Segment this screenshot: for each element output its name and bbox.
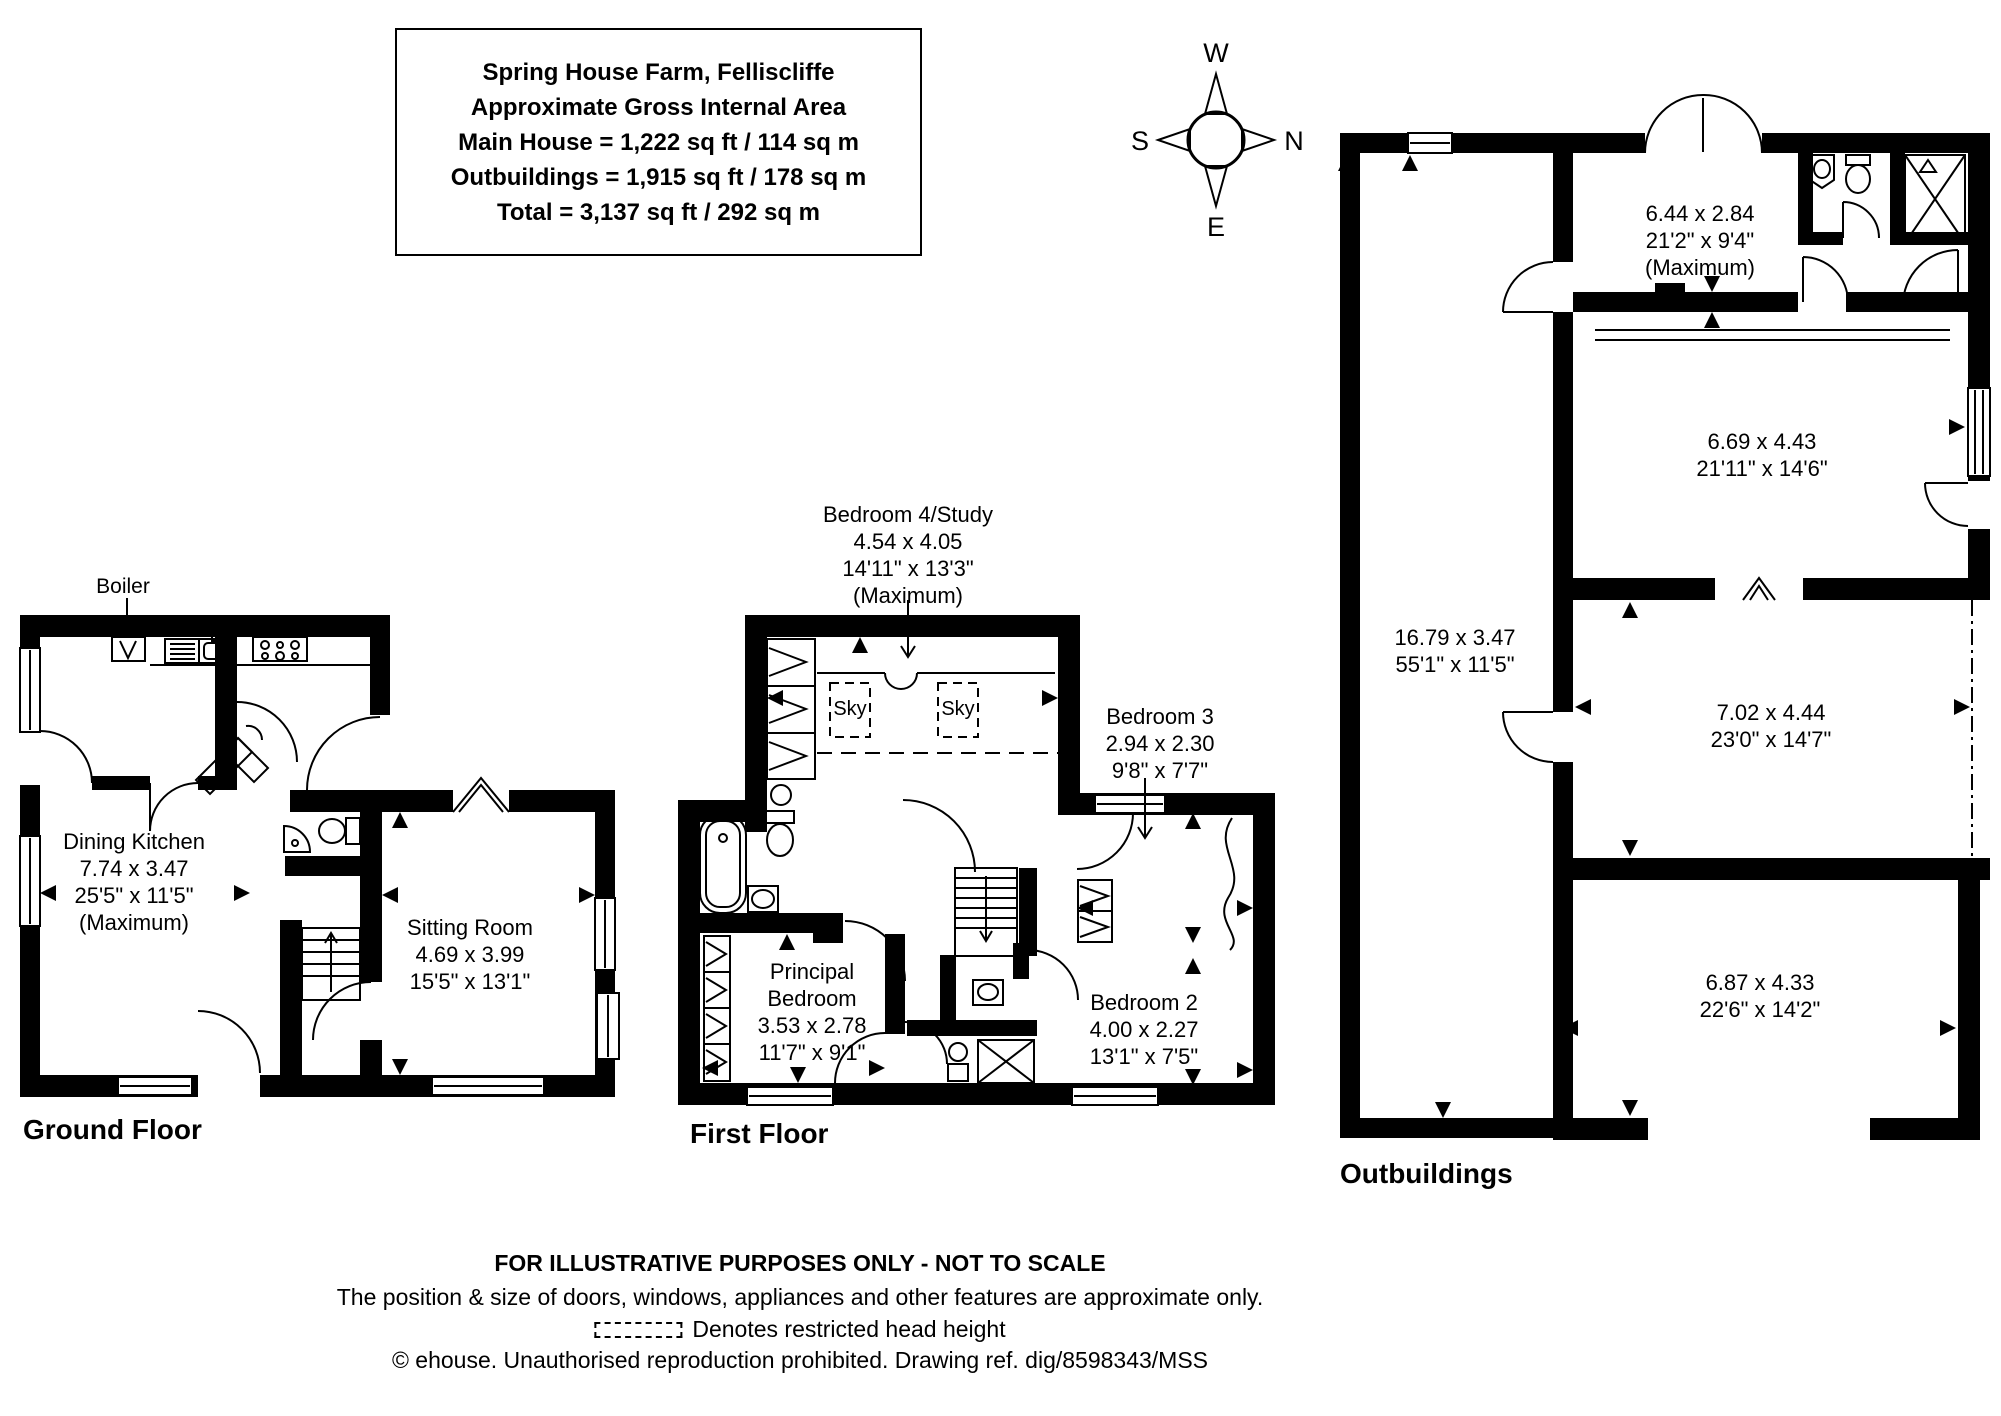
outbuildings-area: Outbuildings = 1,915 sq ft / 178 sq m [397,160,920,195]
compass-north-label: N [1284,126,1304,156]
shower-icon [978,1040,1034,1083]
toilet-icon [766,811,794,856]
middle-barn-label: 7.02 x 4.44 23'0" x 14'7" [1711,699,1832,753]
footer-approx-note: The position & size of doors, windows, a… [337,1284,1263,1311]
area-heading: Approximate Gross Internal Area [397,90,920,125]
bedroom3-label: Bedroom 3 2.94 x 2.30 9'8" x 7'7" [1106,703,1215,784]
hob-icon [253,637,307,661]
shower-icon [1905,155,1965,243]
door-arc [1028,950,1078,1000]
toilet-icon [1846,155,1870,193]
compass-east-label: E [1207,212,1225,242]
footer-restricted-note: Denotes restricted head height [594,1316,1005,1343]
compass-rose: W N E S [1131,38,1304,242]
door-arc [237,702,297,762]
boiler-label: Boiler [96,575,150,599]
door-arc [40,731,92,783]
stairs-icon [302,928,360,1000]
principal-bedroom-label: Principal Bedroom 3.53 x 2.78 11'7" x 9'… [727,958,897,1066]
stairs-icon [955,868,1017,956]
door-arc [903,800,975,872]
sitting-room-label: Sitting Room 4.69 x 3.99 15'5" x 13'1" [407,914,533,995]
door-arc [198,1011,260,1073]
skylight-label: Sky [941,698,974,721]
compass-west-label: W [1203,38,1229,68]
sink-icon [1810,155,1834,188]
toilet-icon [948,1043,968,1081]
curtain-squiggle [1224,818,1234,950]
door-arc [1503,712,1553,762]
title-block: Spring House Farm, Felliscliffe Approxim… [395,28,922,256]
main-house-area: Main House = 1,222 sq ft / 114 sq m [397,125,920,160]
dining-kitchen-label: Dining Kitchen 7.74 x 3.47 25'5" x 11'5"… [63,828,205,936]
skylight-label: Sky [833,698,866,721]
door-arc [307,717,380,790]
toilet-icon [319,818,360,844]
total-area: Total = 3,137 sq ft / 292 sq m [397,195,920,230]
long-store-label: 16.79 x 3.47 55'1" x 11'5" [1394,624,1515,678]
footer-disclaimer: FOR ILLUSTRATIVE PURPOSES ONLY - NOT TO … [494,1250,1105,1277]
lower-barn-label: 6.87 x 4.33 22'6" x 14'2" [1700,969,1821,1023]
property-name: Spring House Farm, Felliscliffe [397,55,920,90]
bedroom4-study-label: Bedroom 4/Study 4.54 x 4.05 14'11" x 13'… [823,501,993,609]
footer-copyright: © ehouse. Unauthorised reproduction proh… [392,1347,1208,1374]
door-arc [1925,483,1968,526]
first-floor-title: First Floor [690,1118,828,1150]
bathtub-icon [700,815,746,913]
bedroom2-label: Bedroom 2 4.00 x 2.27 13'1" x 7'5" [1090,989,1199,1070]
corner-sink-icon [284,826,310,852]
compass-south-label: S [1131,126,1149,156]
outbuildings-title: Outbuildings [1340,1158,1513,1190]
top-store-label: 6.44 x 2.84 21'2" x 9'4" (Maximum) [1645,200,1755,281]
door-arc [1843,202,1879,238]
restricted-head-height-symbol [594,1322,682,1338]
door-arc [1503,262,1553,312]
wardrobe-icon [767,639,815,805]
door-arc [150,783,198,831]
door-arc [1077,813,1133,869]
upper-barn-label: 6.69 x 4.43 21'11" x 14'6" [1696,428,1827,482]
floorplan-page: { "title_block": { "line1": "Spring Hous… [0,0,2001,1416]
ground-floor-title: Ground Floor [23,1114,202,1146]
sink-icon [973,980,1003,1005]
sink-icon [748,886,778,912]
